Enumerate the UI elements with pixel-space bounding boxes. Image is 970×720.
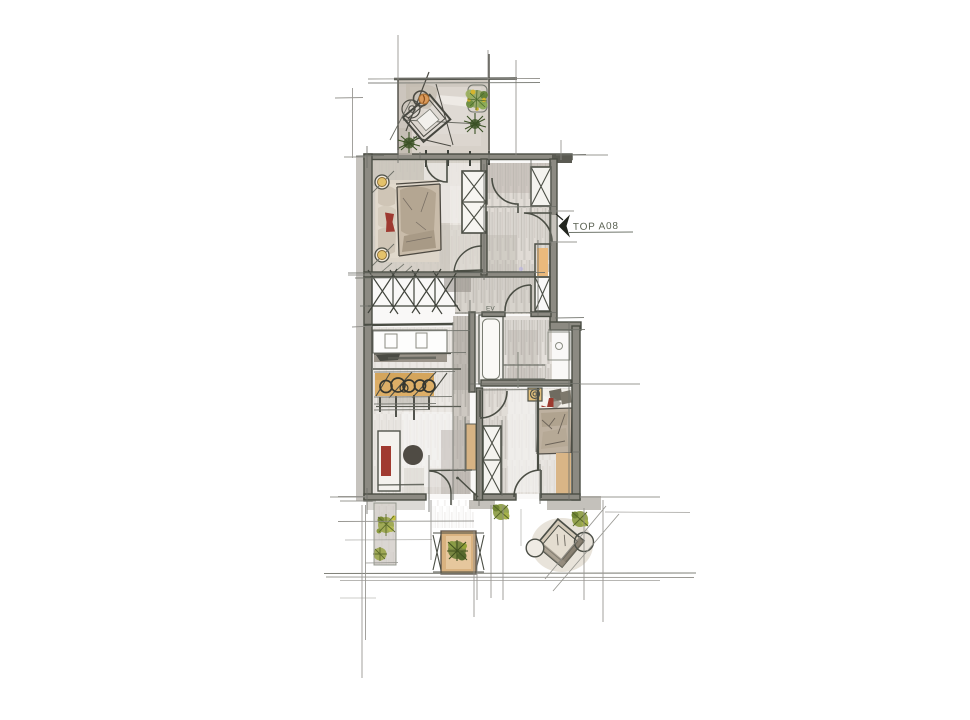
svg-text:TOP A08: TOP A08 (573, 221, 619, 233)
svg-text:EV: EV (486, 306, 495, 313)
